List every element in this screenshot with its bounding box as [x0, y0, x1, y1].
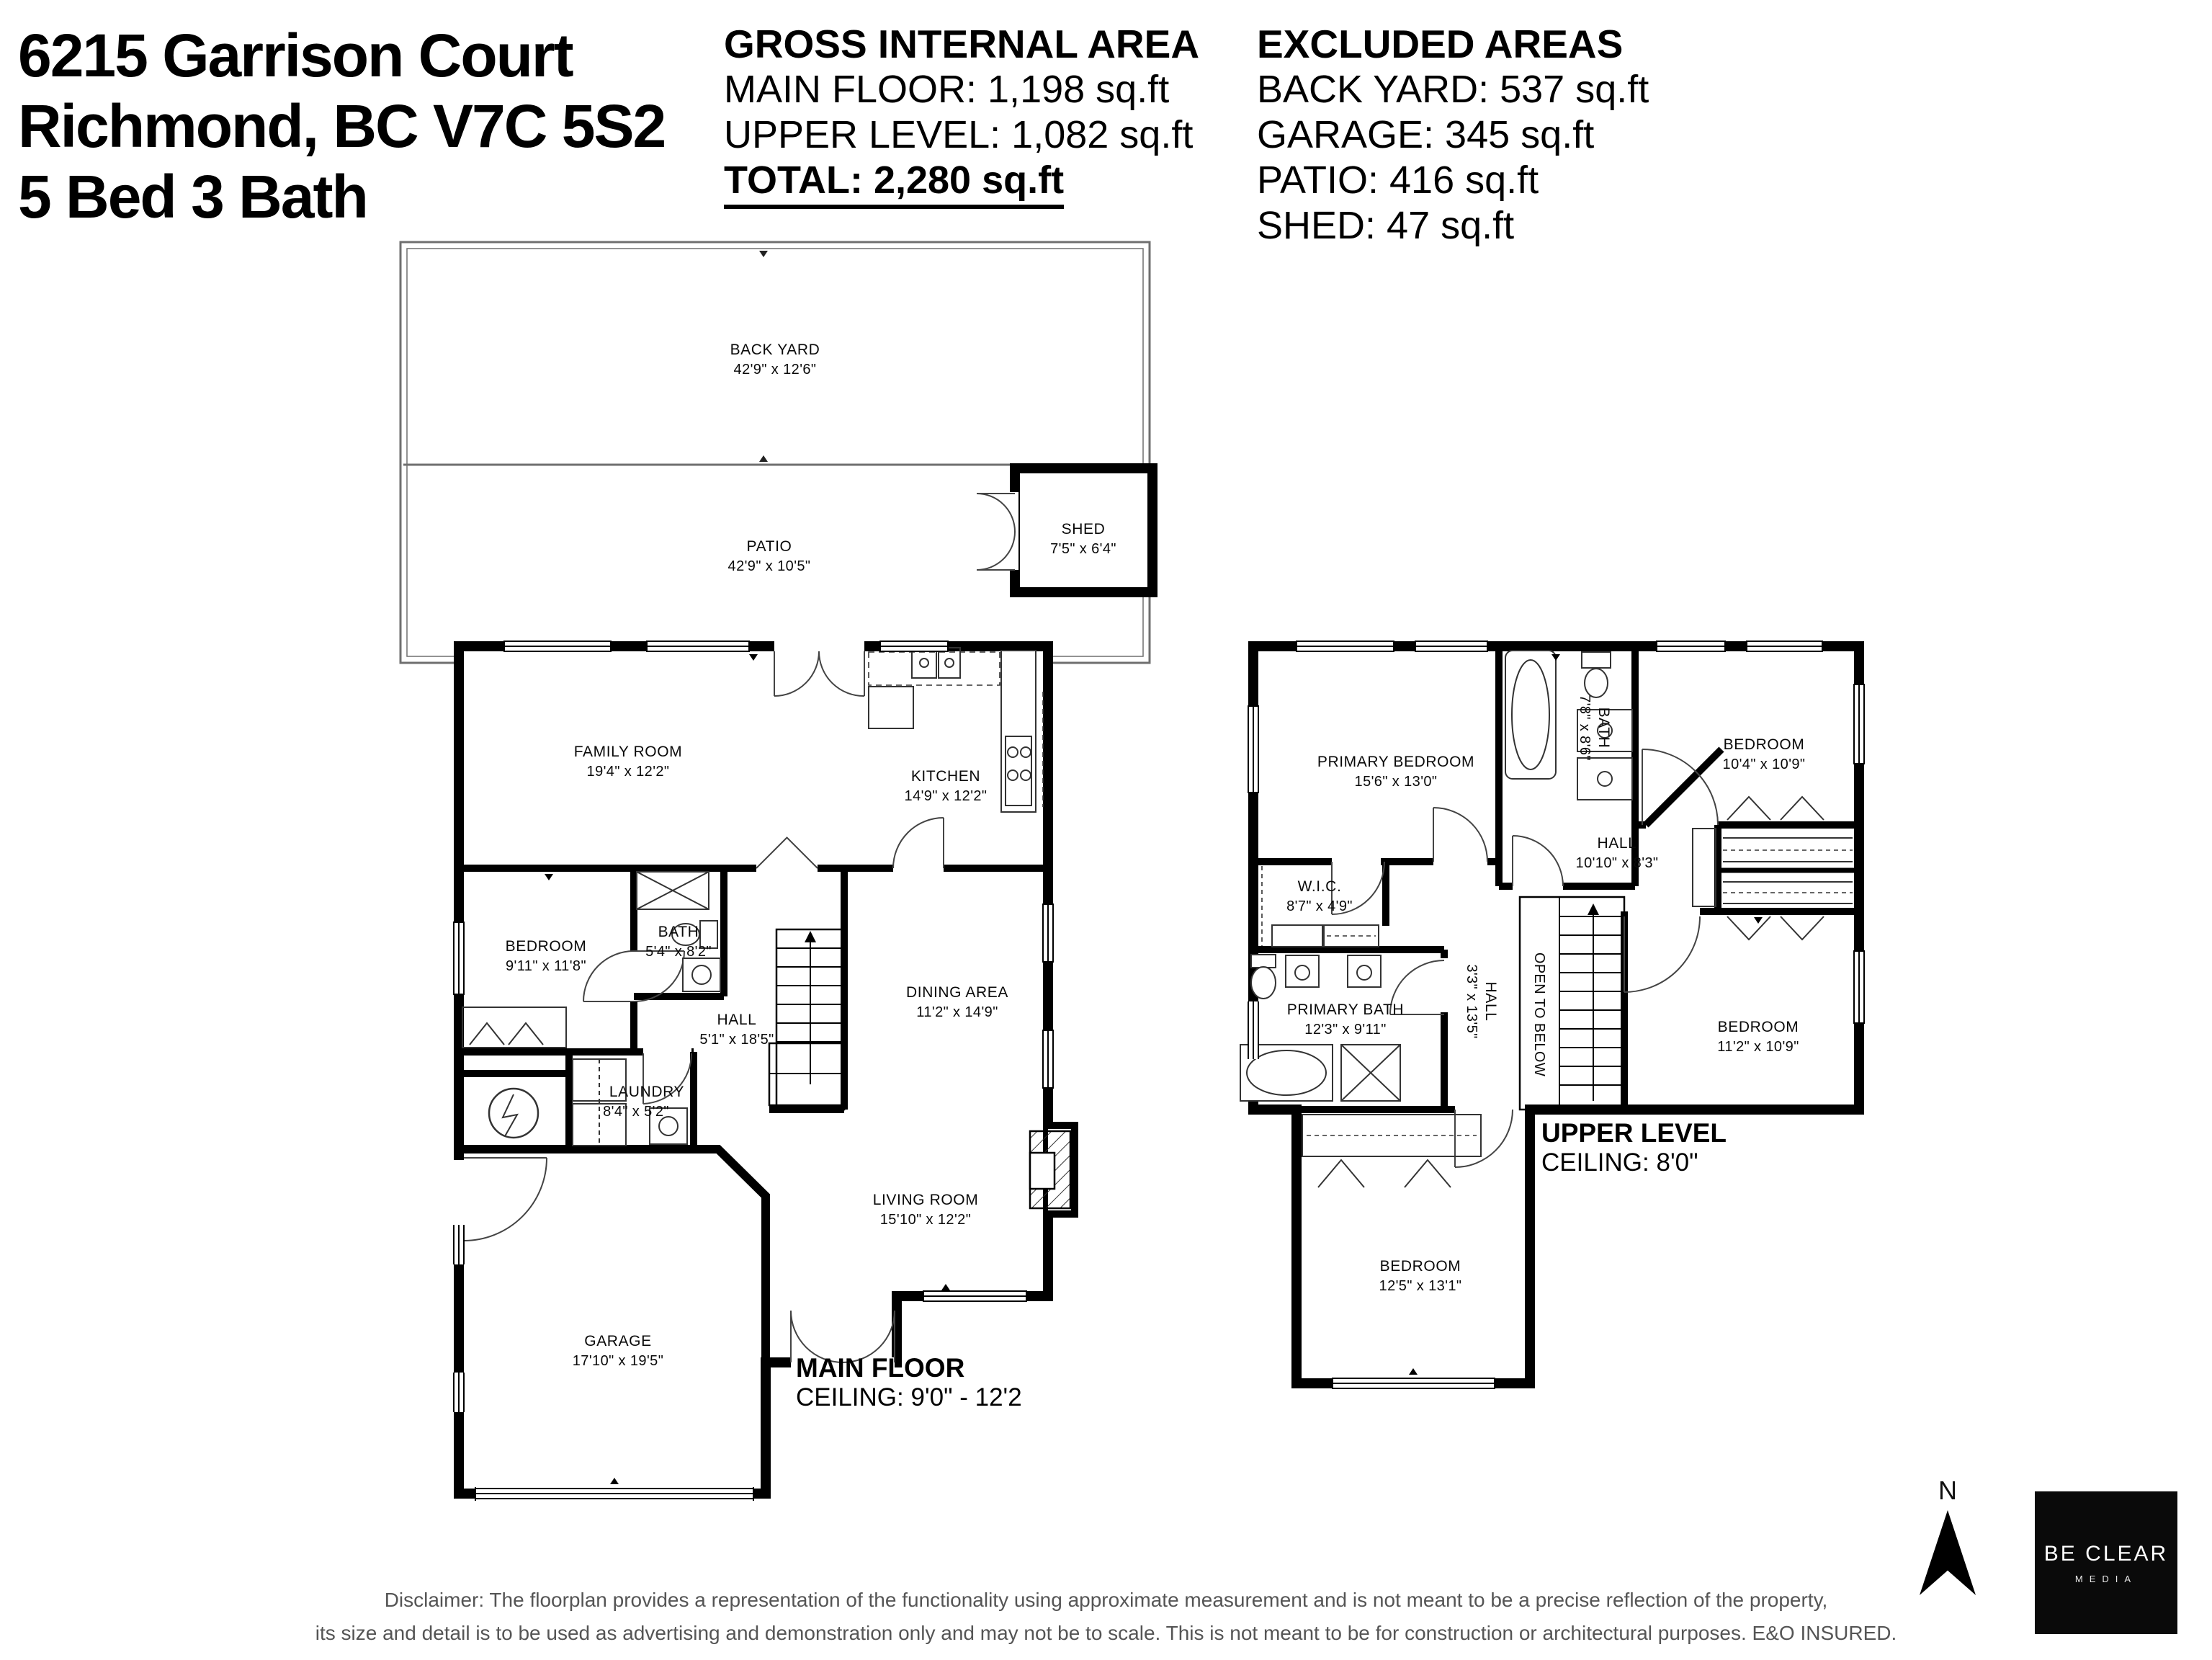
label-primary-bath: PRIMARY BATH	[1287, 1001, 1404, 1018]
label-bath-upper: BATH	[1595, 708, 1612, 749]
disclaimer-line-2: its size and detail is to be used as adv…	[0, 1617, 2212, 1650]
dims-bedroom-bottom: 12'5" x 13'1"	[1379, 1278, 1462, 1294]
label-garage: GARAGE	[584, 1333, 651, 1349]
dims-family-room: 19'4" x 12'2"	[587, 764, 670, 780]
address-line-2: Richmond, BC V7C 5S2	[18, 91, 665, 161]
excluded-back-yard: BACK YARD: 537 sq.ft	[1257, 67, 1649, 112]
dims-laundry: 8'4" x 5'2"	[603, 1104, 669, 1120]
address-line-1: 6215 Garrison Court	[18, 20, 665, 91]
label-open-to-below: OPEN TO BELOW	[1531, 952, 1547, 1076]
gross-internal-area-title: GROSS INTERNAL AREA	[724, 22, 1199, 67]
label-dining-area: DINING AREA	[906, 984, 1008, 1001]
dims-living-room: 15'10" x 12'2"	[880, 1212, 971, 1228]
upper-level-title: UPPER LEVEL	[1541, 1118, 1727, 1148]
label-hall2: HALL	[1482, 982, 1499, 1022]
label-wic: W.I.C.	[1298, 878, 1342, 895]
dims-primary-bedroom: 15'6" x 13'0"	[1355, 774, 1438, 790]
label-family-room: FAMILY ROOM	[574, 744, 683, 760]
outdoor-area-outline	[400, 242, 1150, 663]
dims-patio: 42'9" x 10'5"	[728, 558, 811, 574]
fireplace	[1030, 1125, 1075, 1214]
main-floor-title: MAIN FLOOR	[796, 1353, 1022, 1383]
label-bedroom-right: BEDROOM	[1718, 1019, 1799, 1035]
dims-dining-area: 11'2" x 14'9"	[916, 1004, 998, 1020]
disclaimer-line-1: Disclaimer: The floorplan provides a rep…	[0, 1584, 2212, 1617]
upper-level-plan: PRIMARY BEDROOM 15'6" x 13'0" BATH 7'8" …	[1217, 634, 1880, 1463]
dims-hall2: 3'3" x 13'5"	[1464, 964, 1479, 1038]
address-line-3: 5 Bed 3 Bath	[18, 161, 665, 232]
upper-level-area: UPPER LEVEL: 1,082 sq.ft	[724, 112, 1199, 158]
label-back-yard: BACK YARD	[730, 342, 820, 358]
logo-line-2: MEDIA	[2075, 1574, 2137, 1584]
dims-bedroom-main: 9'11" x 11'8"	[506, 958, 586, 974]
main-floor-caption: MAIN FLOOR CEILING: 9'0" - 12'2	[796, 1353, 1022, 1412]
dims-bath-upper: 7'8" x 8'6"	[1577, 695, 1593, 761]
label-bedroom-top: BEDROOM	[1724, 736, 1805, 753]
dims-shed: 7'5" x 6'4"	[1050, 541, 1116, 557]
compass-north-label: N	[1916, 1476, 1979, 1506]
logo-line-1: BE CLEAR	[2044, 1542, 2168, 1566]
excluded-areas-title: EXCLUDED AREAS	[1257, 22, 1649, 67]
dims-garage: 17'10" x 19'5"	[573, 1353, 663, 1369]
label-laundry: LAUNDRY	[609, 1084, 684, 1100]
excluded-garage: GARAGE: 345 sq.ft	[1257, 112, 1649, 158]
main-floor-plan: BACK YARD 42'9" x 12'6" PATIO 42'9" x 10…	[389, 238, 1167, 1506]
label-bath-main: BATH	[658, 924, 699, 940]
dims-bedroom-right: 11'2" x 10'9"	[1717, 1039, 1799, 1055]
north-arrow-icon	[1920, 1510, 1976, 1595]
dims-bedroom-top: 10'4" x 10'9"	[1723, 757, 1806, 772]
label-living-room: LIVING ROOM	[873, 1192, 979, 1208]
main-floor-ceiling: CEILING: 9'0" - 12'2	[796, 1383, 1022, 1412]
dims-bath-main: 5'4" x 8'2"	[645, 944, 712, 960]
compass: N	[1916, 1476, 1979, 1595]
label-hall-upper: HALL	[1598, 835, 1637, 852]
dims-kitchen: 14'9" x 12'2"	[905, 788, 988, 804]
dims-wic: 8'7" x 4'9"	[1286, 898, 1353, 914]
label-shed: SHED	[1062, 521, 1106, 537]
property-address: 6215 Garrison Court Richmond, BC V7C 5S2…	[18, 20, 665, 232]
upper-level-ceiling: CEILING: 8'0"	[1541, 1148, 1727, 1177]
label-kitchen: KITCHEN	[911, 768, 980, 785]
label-primary-bedroom: PRIMARY BEDROOM	[1317, 754, 1474, 770]
excluded-patio: PATIO: 416 sq.ft	[1257, 158, 1649, 203]
dims-back-yard: 42'9" x 12'6"	[734, 362, 817, 378]
main-floor-area: MAIN FLOOR: 1,198 sq.ft	[724, 67, 1199, 112]
label-hall-main: HALL	[717, 1012, 757, 1028]
label-bedroom-main: BEDROOM	[506, 938, 587, 955]
dims-hall-main: 5'1" x 18'5"	[699, 1032, 774, 1048]
excluded-shed: SHED: 47 sq.ft	[1257, 203, 1649, 249]
total-area: TOTAL: 2,280 sq.ft	[724, 158, 1064, 209]
excluded-areas-summary: EXCLUDED AREAS BACK YARD: 537 sq.ft GARA…	[1257, 22, 1649, 249]
upper-level-caption: UPPER LEVEL CEILING: 8'0"	[1541, 1118, 1727, 1177]
gross-internal-area-summary: GROSS INTERNAL AREA MAIN FLOOR: 1,198 sq…	[724, 22, 1199, 209]
dims-primary-bath: 12'3" x 9'11"	[1304, 1022, 1386, 1037]
disclaimer: Disclaimer: The floorplan provides a rep…	[0, 1584, 2212, 1650]
label-bedroom-bottom: BEDROOM	[1380, 1258, 1461, 1275]
dims-hall-upper: 10'10" x 8'3"	[1576, 855, 1659, 871]
label-patio: PATIO	[747, 538, 792, 555]
